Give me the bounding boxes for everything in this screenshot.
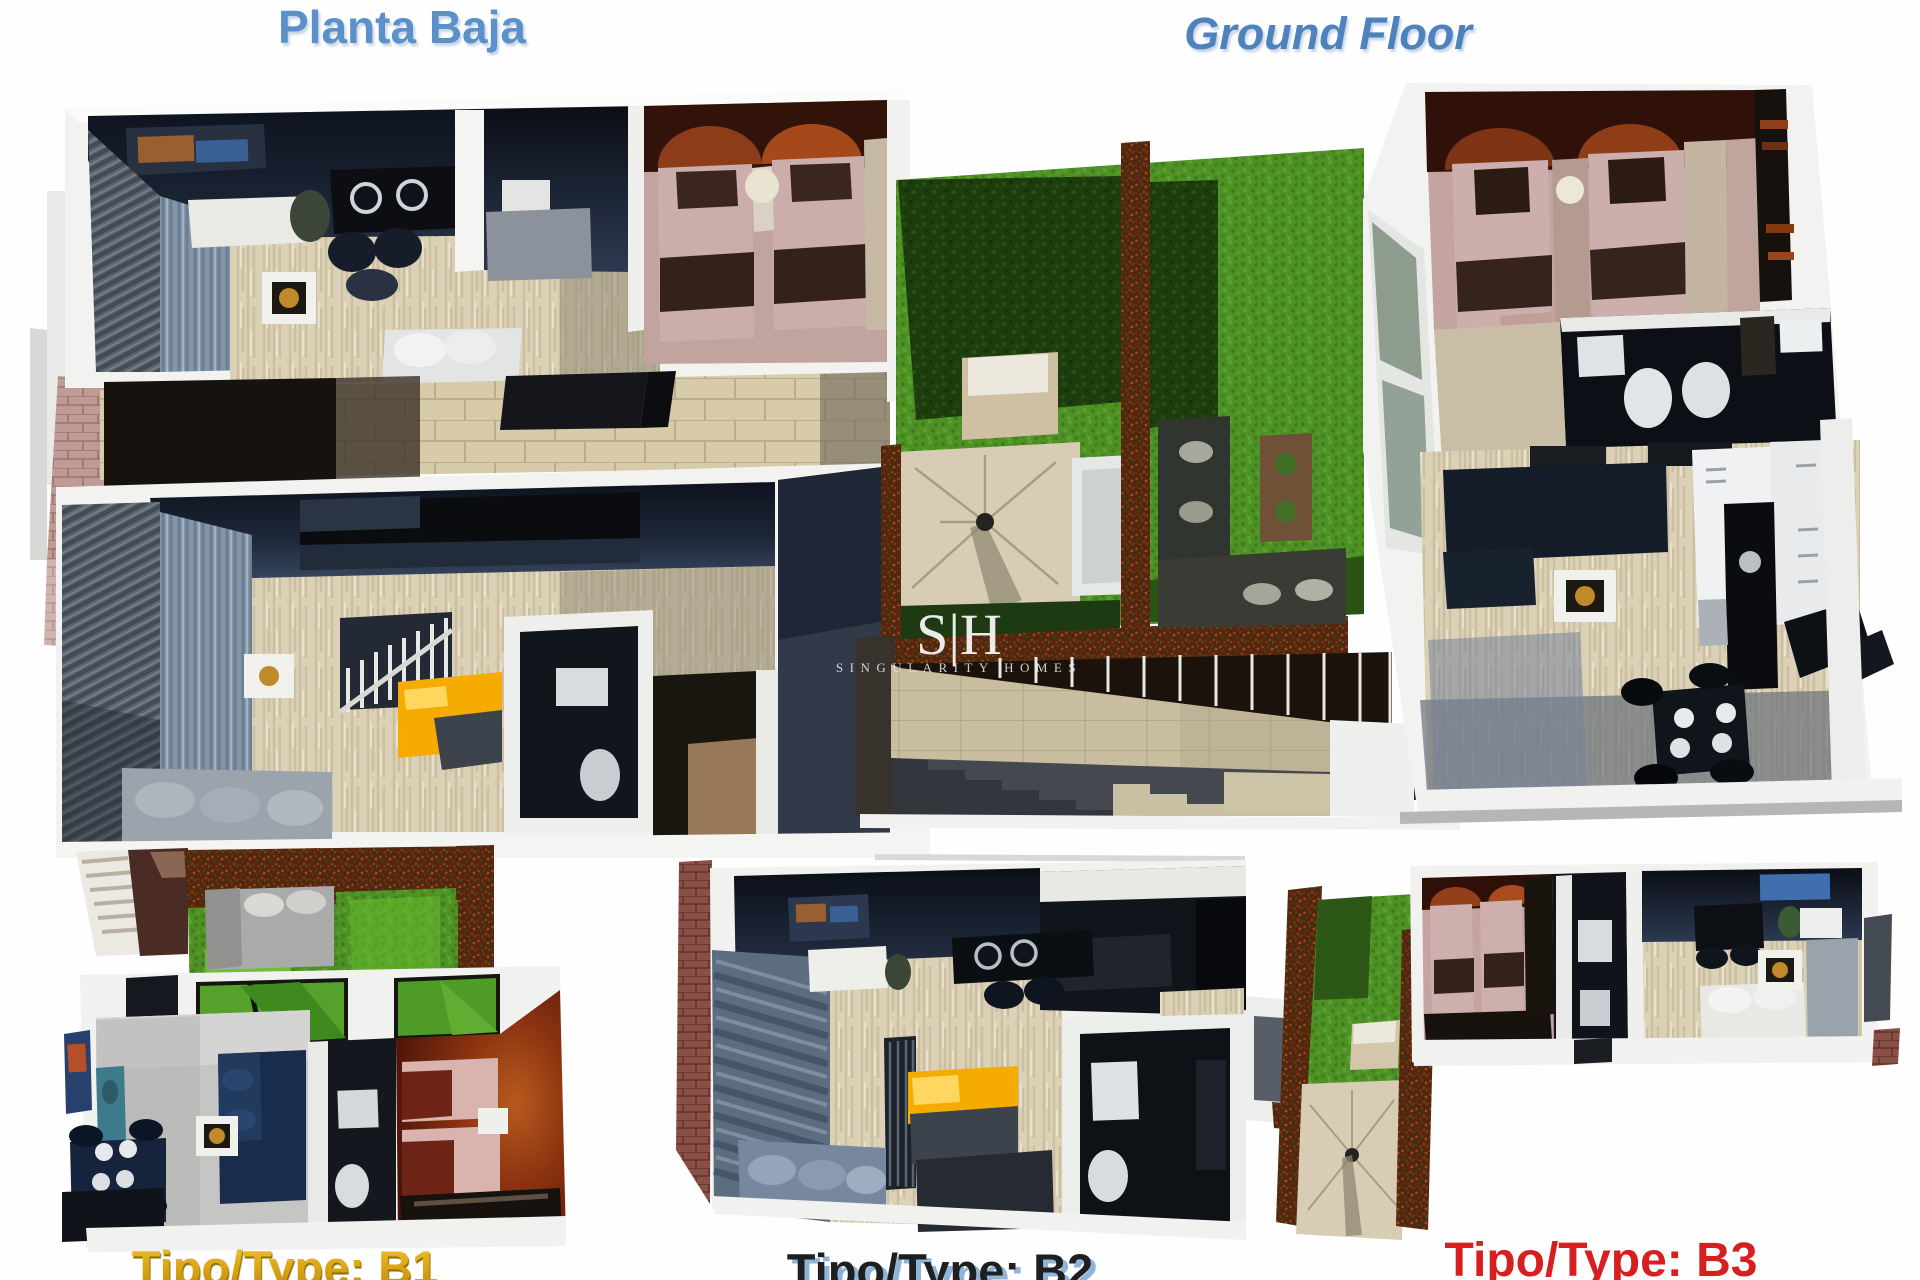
svg-text:Tipo/Type: B1: Tipo/Type: B1 (132, 1241, 438, 1280)
svg-text:Tipo/Type: B2: Tipo/Type: B2 (787, 1244, 1093, 1280)
svg-text:Planta Baja: Planta Baja (278, 1, 526, 53)
svg-text:Tipo/Type: B3: Tipo/Type: B3 (1445, 1234, 1758, 1280)
svg-text:Ground Floor: Ground Floor (1184, 8, 1474, 59)
svg-text:S|H: S|H (916, 602, 1002, 667)
svg-text:SINGULARITY HOMES: SINGULARITY HOMES (836, 660, 1082, 675)
